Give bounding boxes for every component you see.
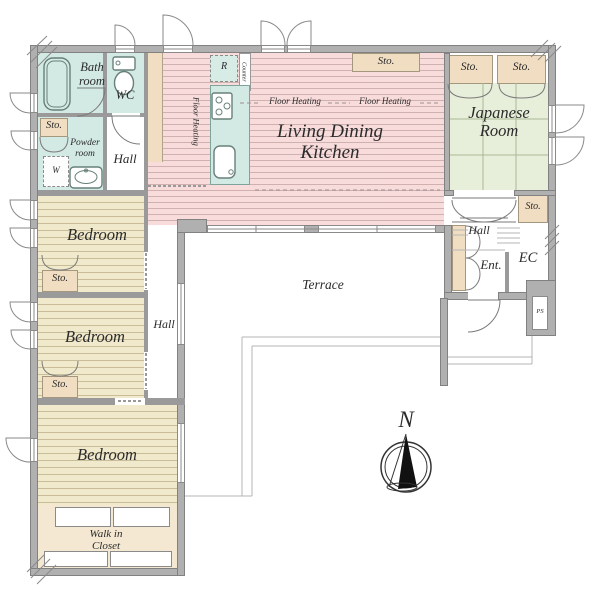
door-gap-bedroom3 bbox=[115, 398, 145, 405]
label-sto-jp-right: Sto. bbox=[497, 61, 546, 74]
closet-rod-3 bbox=[44, 551, 108, 567]
label-powder: Powderroom bbox=[60, 138, 110, 159]
entrance-fan-doors bbox=[452, 198, 516, 222]
label-sto-bedroom-1: Sto. bbox=[42, 273, 78, 285]
wall-bath-south bbox=[38, 113, 105, 117]
label-compass-north: N bbox=[391, 407, 421, 433]
label-washer: W bbox=[46, 165, 66, 175]
sliding-window-ldk-2 bbox=[318, 225, 436, 233]
door-gap-front bbox=[468, 292, 498, 300]
label-sto-bedroom-2: Sto. bbox=[42, 379, 78, 391]
window-top-2 bbox=[163, 45, 193, 53]
window-left-5 bbox=[30, 302, 38, 322]
window-left-4 bbox=[30, 228, 38, 248]
label-counter: Counter bbox=[240, 55, 247, 89]
label-bedroom-1: Bedroom bbox=[50, 226, 144, 244]
label-sto-ldk: Sto. bbox=[352, 55, 420, 67]
door-gap-wc bbox=[112, 113, 140, 117]
door-gap-bedroom2 bbox=[144, 352, 148, 390]
label-fridge: R bbox=[215, 61, 233, 72]
wall-bedroom1-2 bbox=[38, 292, 144, 298]
wall-japanese-south-a bbox=[444, 190, 454, 196]
window-left-1 bbox=[30, 93, 38, 113]
label-hall-west: Hall bbox=[105, 152, 145, 167]
label-terrace: Terrace bbox=[287, 277, 359, 292]
closet-rod-2 bbox=[113, 507, 170, 527]
wall-pillar-terrace-corner bbox=[177, 219, 207, 233]
label-walk-in-closet: Walk inCloset bbox=[72, 528, 140, 553]
wall-terrace-ent bbox=[444, 225, 452, 298]
wall-porch-left bbox=[440, 298, 448, 386]
wall-japanese-south-b bbox=[514, 190, 556, 196]
label-sto-jp-south: Sto. bbox=[518, 201, 548, 212]
window-hall-terrace bbox=[177, 283, 185, 345]
compass-icon bbox=[381, 434, 431, 492]
label-floor-heating-left: Floor Heating bbox=[191, 86, 201, 156]
wall-powder-bedroom1 bbox=[38, 190, 144, 196]
label-sto-powder: Sto. bbox=[40, 120, 68, 132]
window-left-2 bbox=[30, 131, 38, 150]
label-ldk: Living DiningKitchen bbox=[240, 121, 420, 164]
label-floor-heating-mid: Floor Heating bbox=[263, 96, 327, 106]
wall-mid-vertical bbox=[444, 53, 450, 196]
label-wc: WC bbox=[110, 88, 140, 102]
door-gap-bedroom1 bbox=[144, 252, 148, 290]
wall-bedroom2-3 bbox=[38, 398, 185, 405]
window-left-6 bbox=[30, 330, 38, 349]
window-right-1 bbox=[548, 105, 556, 133]
label-entrance: Ent. bbox=[470, 258, 512, 273]
label-pipe-shaft: PS bbox=[532, 308, 548, 315]
floor-plan: Bathroom WC Sto. Powderroom W Hall R Cou… bbox=[0, 0, 600, 600]
label-bath: Bathroom bbox=[68, 60, 116, 88]
label-bedroom-3: Bedroom bbox=[58, 446, 156, 464]
window-bedroom3-terrace bbox=[177, 423, 185, 483]
label-hall-entrance: Hall bbox=[460, 224, 498, 237]
pantry-strip bbox=[146, 53, 163, 162]
wall-ent-south-right bbox=[498, 292, 528, 300]
wall-bottom-west bbox=[30, 568, 185, 576]
window-top-1 bbox=[115, 45, 135, 53]
label-japanese: JapaneseRoom bbox=[454, 104, 544, 141]
sliding-window-ldk-1 bbox=[207, 225, 305, 233]
window-left-3 bbox=[30, 200, 38, 220]
label-bedroom-2: Bedroom bbox=[48, 328, 142, 346]
window-left-7 bbox=[30, 438, 38, 462]
label-sto-jp-left: Sto. bbox=[446, 61, 493, 74]
label-floor-heating-right: Floor Heating bbox=[352, 96, 418, 106]
closet-rod-4 bbox=[110, 551, 172, 567]
window-top-4 bbox=[287, 45, 311, 53]
window-right-2 bbox=[548, 137, 556, 165]
wall-hall-strip bbox=[144, 53, 148, 196]
window-top-3 bbox=[261, 45, 285, 53]
label-hall-center: Hall bbox=[144, 318, 184, 331]
front-door-arc bbox=[468, 300, 500, 332]
closet-rod-1 bbox=[55, 507, 111, 527]
label-entrance-closet: EC bbox=[510, 250, 546, 266]
wall-right-upper bbox=[548, 45, 556, 298]
